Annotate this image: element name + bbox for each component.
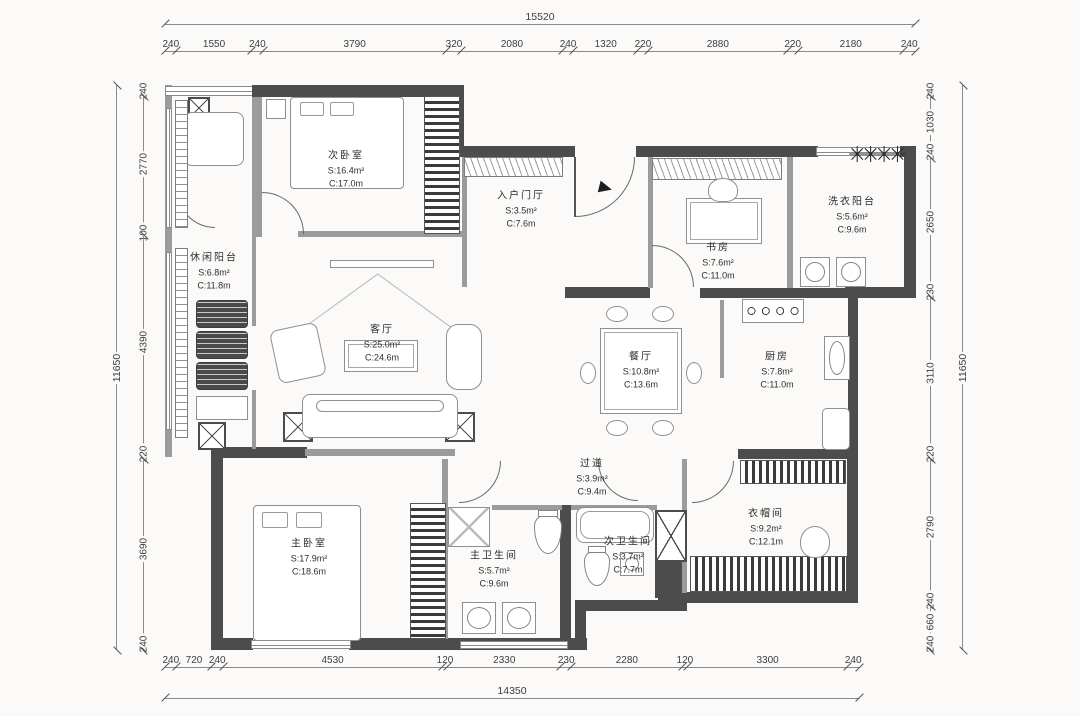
room-area: S:7.6m² (701, 256, 734, 270)
wall-exterior-right-lower (847, 458, 858, 598)
dimension-value: 660 (926, 612, 937, 633)
room-name: 入户门厅 (497, 188, 545, 204)
dimension-segment: 720 (177, 652, 212, 668)
side-chair (446, 324, 482, 390)
window-master-bay (251, 640, 351, 649)
desk-study (686, 198, 762, 244)
shower (448, 507, 490, 547)
dimension-segment: 3790 (263, 36, 446, 52)
cabinet-study (652, 158, 782, 180)
dimension-value: 240 (901, 39, 918, 50)
room-area: S:3.9m² (576, 472, 608, 486)
wall-exterior-right-upper (904, 146, 916, 298)
room-label-study: 书房 S:7.6m² C:11.0m (701, 240, 734, 283)
room-label-walk-in-closet: 衣帽间 S:9.2m² C:12.1m (748, 506, 784, 549)
nightstand (266, 99, 286, 119)
study-door-arc (652, 245, 694, 287)
closet-door-arc (692, 461, 734, 503)
dimension-segment: 1030 (930, 97, 946, 147)
dimension-value: 4390 (139, 329, 150, 355)
dimension-chain-right: 2401030240265023031102202790240660240 (930, 85, 946, 650)
room-area: S:7.8m² (760, 365, 793, 379)
room-label-leisure-balcony: 休闲阳台 S:6.8m² C:11.8m (190, 250, 238, 293)
room-area: S:6.8m² (190, 266, 238, 280)
wall-kitchen-top (700, 288, 846, 298)
room-label-dining-room: 餐厅 S:10.8m² C:13.6m (623, 349, 660, 392)
room-circumference: C:12.1m (748, 536, 784, 550)
washing-machine (800, 257, 830, 287)
wall-laundry-bottom (845, 287, 916, 298)
dimension-segment: 1550 (177, 36, 252, 52)
dining-chair (580, 362, 596, 384)
dimension-segment: 2880 (648, 36, 787, 52)
toilet-master (534, 514, 562, 554)
room-name: 洗衣阳台 (828, 194, 876, 210)
partition-study-right (787, 157, 793, 288)
partition-kitchen-left (720, 300, 724, 378)
wall-entry-top-left (462, 146, 575, 157)
dimension-chain-left: 240277010043902203690240 (143, 85, 159, 650)
dimension-total-top: 15520 (165, 8, 915, 25)
room-area: S:17.9m² (291, 552, 328, 566)
room-label-master-bedroom: 主卧室 S:17.9m² C:18.6m (291, 536, 328, 579)
dimension-value: 4530 (321, 655, 343, 666)
room-name: 厨房 (760, 349, 793, 365)
room-area: S:5.7m² (470, 564, 518, 578)
room-name: 客厅 (364, 322, 401, 338)
closet-shelf-bottom (690, 556, 847, 592)
dimension-segment: 240 (930, 147, 946, 159)
partition-living-balcony-upper (252, 236, 256, 326)
washing-machine-2 (836, 257, 866, 287)
room-label-kitchen: 厨房 S:7.8m² C:11.0m (760, 349, 793, 392)
dimension-segment: 220 (638, 36, 649, 52)
wall-entry-top-right (636, 146, 818, 157)
room-circumference: C:11.8m (190, 280, 238, 294)
floor-plan-page: { "drawing": { "type": "apartment-floor-… (0, 0, 1080, 716)
room-circumference: C:18.6m (291, 566, 328, 580)
dimension-segment: 240 (847, 652, 859, 668)
dimension-value: 3790 (344, 39, 366, 50)
dimension-value: 240 (845, 655, 862, 666)
dimension-chain-bottom: 2407202404530120233023022801203300240 (165, 652, 859, 668)
room-name: 休闲阳台 (190, 250, 238, 266)
room-name: 书房 (701, 240, 734, 256)
dimension-value: 320 (446, 39, 463, 50)
room-circumference: C:24.6m (364, 352, 401, 366)
dimension-value: 2790 (926, 514, 937, 540)
lounge-chair-balcony (184, 112, 244, 166)
room-name: 主卧室 (291, 536, 328, 552)
closet-chair (800, 526, 830, 558)
dimension-segment: 1320 (574, 36, 638, 52)
room-label-second-bedroom: 次卧室 S:16.4m² C:17.0m (328, 148, 365, 191)
room-area: S:25.0m² (364, 338, 401, 352)
dimension-value: 3300 (756, 655, 778, 666)
dimension-total-right: 11650 (962, 85, 979, 650)
closet-shelf-top (740, 460, 846, 484)
pillow (262, 512, 288, 528)
room-circumference: C:9.6m (828, 224, 876, 238)
dimension-segment: 240 (143, 85, 159, 97)
dimension-segment: 240 (252, 36, 264, 52)
dimension-segment: 3300 (688, 652, 848, 668)
balcony-table (196, 396, 248, 420)
dimension-segment: 240 (143, 638, 159, 650)
room-name: 过道 (576, 456, 608, 472)
dining-chair (606, 420, 628, 436)
dimension-value: 3110 (926, 361, 937, 387)
wall-bath2-bottom (575, 600, 687, 611)
room-circumference: C:9.4m (576, 486, 608, 500)
room-label-second-bathroom: 次卫生间 S:3.7m² C:7.7m (604, 534, 652, 577)
dimension-value: 11650 (111, 351, 123, 383)
dimension-value: 2080 (501, 39, 523, 50)
dimension-value: 11650 (957, 351, 969, 383)
balcony-seat (196, 300, 248, 328)
vanity-sink-2 (502, 602, 536, 634)
balcony-seat-2 (196, 331, 248, 359)
room-area: S:9.2m² (748, 522, 784, 536)
vanity-sink-1 (462, 602, 496, 634)
dimension-value: 720 (186, 655, 203, 666)
room-area: S:16.4m² (328, 164, 365, 178)
dimension-value: 2280 (616, 655, 638, 666)
dining-chair (652, 420, 674, 436)
dimension-value: 2880 (707, 39, 729, 50)
dimension-segment: 220 (143, 449, 159, 460)
dimension-segment: 240 (930, 638, 946, 650)
chair-study (708, 178, 738, 202)
dimension-value: 2330 (493, 655, 515, 666)
wall-closet-bottom (658, 592, 858, 603)
wall-exterior-left-lower (211, 449, 223, 650)
stove (742, 299, 804, 323)
room-label-living-room: 客厅 S:25.0m² C:24.6m (364, 322, 401, 365)
room-label-laundry-balcony: 洗衣阳台 S:5.6m² C:9.6m (828, 194, 876, 237)
dimension-value: 240 (139, 634, 150, 655)
balcony-cabinet-upper (175, 100, 188, 228)
window-master-bath (460, 641, 568, 649)
dimension-segment: 4530 (223, 652, 442, 668)
dimension-value: 3690 (139, 536, 150, 562)
dining-chair (686, 362, 702, 384)
room-circumference: C:9.6m (470, 578, 518, 592)
plant-icon: ✳✳✳✳ (848, 146, 906, 164)
room-circumference: C:11.0m (701, 270, 734, 284)
dimension-segment: 2650 (930, 158, 946, 287)
dimension-segment: 240 (930, 85, 946, 97)
dimension-segment: 220 (787, 36, 798, 52)
dimension-total-left: 11650 (116, 85, 133, 650)
wardrobe-master (410, 503, 446, 639)
dimension-segment: 4390 (143, 236, 159, 449)
dimension-value: 15520 (525, 11, 554, 23)
dimension-segment: 2790 (930, 459, 946, 594)
dimension-value: 1550 (203, 39, 225, 50)
shaft-duct (655, 510, 687, 562)
dining-chair (652, 306, 674, 322)
dimension-segment: 2770 (143, 97, 159, 231)
dimension-segment: 3690 (143, 459, 159, 638)
pillow (296, 512, 322, 528)
bedroom2-door-arc (262, 192, 304, 234)
room-circumference: C:7.7m (604, 564, 652, 578)
room-circumference: C:7.6m (497, 218, 545, 232)
wall-foyer-bottom (565, 287, 650, 298)
room-area: S:5.6m² (828, 210, 876, 224)
armchair (269, 322, 327, 385)
cabinet-entry (464, 157, 563, 177)
master-bedroom-door-arc (459, 461, 501, 503)
dimension-value: 2770 (139, 151, 150, 177)
room-label-master-bathroom: 主卫生间 S:5.7m² C:9.6m (470, 548, 518, 591)
column-balcony-bottom (198, 422, 226, 450)
wall-closet-top (738, 449, 848, 459)
fridge (822, 408, 850, 450)
room-label-entry-foyer: 入户门厅 S:3.5m² C:7.6m (497, 188, 545, 231)
dimension-value: 1030 (926, 108, 937, 134)
room-area: S:3.7m² (604, 550, 652, 564)
pillow (300, 102, 324, 116)
dimension-segment: 240 (903, 36, 915, 52)
dimension-segment: 240 (211, 652, 223, 668)
window-balcony-left (166, 108, 172, 228)
balcony-seat-3 (196, 362, 248, 390)
window-balcony-top (165, 86, 253, 96)
room-name: 餐厅 (623, 349, 660, 365)
room-label-corridor: 过道 S:3.9m² C:9.4m (576, 456, 608, 499)
dimension-segment: 2180 (798, 36, 903, 52)
sofa-cushions (316, 400, 444, 412)
dimension-segment: 230 (930, 287, 946, 298)
dimension-total-bottom: 14350 (165, 682, 859, 699)
wardrobe-second-bedroom (424, 96, 460, 234)
dimension-value: 1320 (595, 39, 617, 50)
room-name: 次卧室 (328, 148, 365, 164)
dimension-value: 2180 (840, 39, 862, 50)
dimension-segment: 220 (930, 449, 946, 460)
room-area: S:3.5m² (497, 204, 545, 218)
kitchen-sink (824, 336, 850, 380)
room-name: 衣帽间 (748, 506, 784, 522)
dimension-segment: 2330 (448, 652, 561, 668)
partition-bedroom2-left (252, 97, 262, 237)
pillow (330, 102, 354, 116)
dimension-segment: 240 (930, 595, 946, 607)
room-name: 次卫生间 (604, 534, 652, 550)
room-circumference: C:13.6m (623, 379, 660, 393)
room-area: S:10.8m² (623, 365, 660, 379)
dimension-segment: 2280 (572, 652, 682, 668)
room-circumference: C:17.0m (328, 178, 365, 192)
dimension-value: 240 (926, 634, 937, 655)
tv-cabinet (330, 260, 434, 268)
partition-living-balcony-lower (252, 390, 256, 449)
dining-chair (606, 306, 628, 322)
entry-door-leaf (574, 157, 576, 217)
dimension-value: 2650 (926, 209, 937, 235)
dimension-segment: 3110 (930, 298, 946, 449)
room-name: 主卫生间 (470, 548, 518, 564)
partition-living-master (305, 449, 455, 456)
dimension-chain-top: 2401550240379032020802401320220288022021… (165, 36, 915, 52)
dimension-segment: 2080 (462, 36, 563, 52)
dimension-value: 14350 (497, 685, 526, 697)
room-circumference: C:11.0m (760, 379, 793, 393)
dimension-segment: 320 (446, 36, 461, 52)
balcony-cabinet-lower (175, 248, 188, 438)
window-balcony-left-2 (166, 252, 172, 430)
